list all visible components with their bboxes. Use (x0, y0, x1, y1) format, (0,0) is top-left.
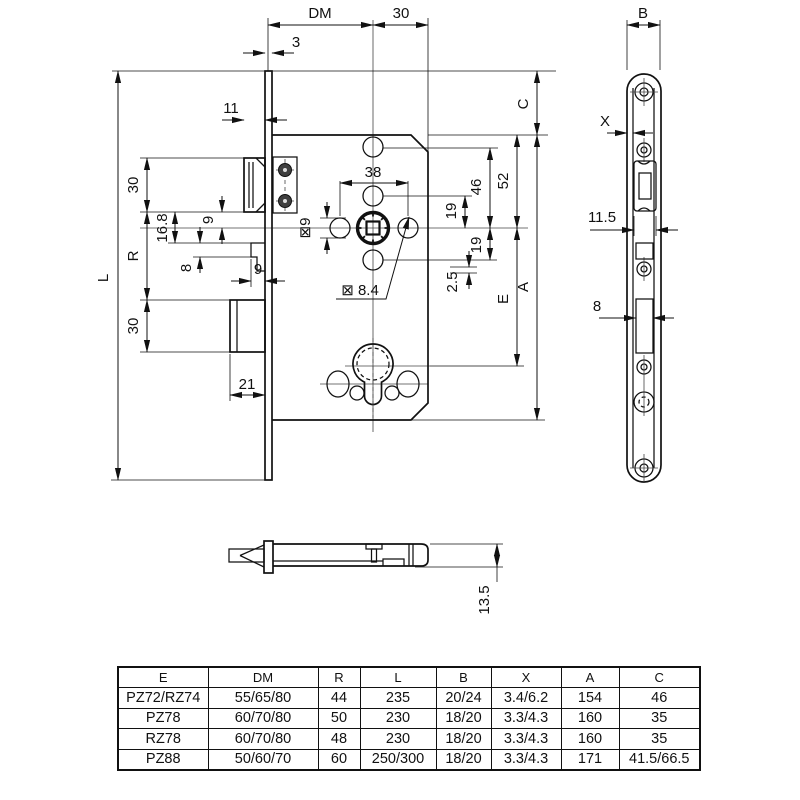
cell: 235 (360, 688, 436, 709)
dim-label-square-9: ⊠9 (297, 218, 314, 239)
dim-label-21: 21 (239, 376, 256, 393)
dim-label-16-8: 16.8 (154, 213, 171, 242)
table-row: PZ78 60/70/80 50 230 18/20 3.3/4.3 160 3… (118, 708, 700, 729)
dim-label-e: E (495, 294, 512, 304)
fixing-holes (330, 137, 418, 270)
cell: 55/65/80 (208, 688, 318, 709)
mortise-lock-technical-drawing: DM 30 3 11 30 9 16.8 8 9 R L 30 21 38 ⊠9… (0, 0, 800, 800)
deadbolt (230, 300, 265, 352)
extension-lines (111, 18, 556, 480)
faceplate-top-view (264, 541, 273, 573)
dim-label-2-5: 2.5 (444, 272, 461, 293)
cell: 3.4/6.2 (491, 688, 561, 709)
dim-label-38: 38 (365, 164, 382, 181)
dim-label-30-deadbolt: 30 (125, 318, 142, 335)
cell: 3.3/4.3 (491, 729, 561, 750)
cell: 160 (561, 708, 619, 729)
dim-label-30-top: 30 (393, 5, 410, 22)
col-header-r: R (318, 667, 360, 688)
dim-label-11: 11 (223, 100, 239, 117)
cell: 35 (619, 708, 700, 729)
dim-label-c: C (515, 98, 532, 109)
dim-label-8: 8 (178, 264, 195, 272)
col-header-x: X (491, 667, 561, 688)
dim-label-8-side: 8 (593, 298, 601, 315)
cell: RZ78 (118, 729, 208, 750)
dim-label-l: L (95, 274, 112, 282)
latch-bolt (244, 158, 265, 212)
cell: 35 (619, 729, 700, 750)
cell: PZ72/RZ74 (118, 688, 208, 709)
col-header-b: B (436, 667, 491, 688)
cell: 60/70/80 (208, 708, 318, 729)
dim-label-b: B (638, 5, 648, 22)
cell: 20/24 (436, 688, 491, 709)
dim-label-9-horiz: 9 (254, 261, 262, 278)
cell: 154 (561, 688, 619, 709)
cell: 60 (318, 749, 360, 770)
cell: 50 (318, 708, 360, 729)
cell: 46 (619, 688, 700, 709)
cell: 44 (318, 688, 360, 709)
dim-label-19-upper: 19 (443, 203, 460, 220)
cell: 230 (360, 708, 436, 729)
col-header-a: A (561, 667, 619, 688)
col-header-dm: DM (208, 667, 318, 688)
dim-label-13-5: 13.5 (476, 585, 493, 614)
dim-label-30-latch: 30 (125, 177, 142, 194)
dim-label-dm: DM (308, 5, 331, 22)
faceplate-edge (265, 71, 272, 480)
col-header-c: C (619, 667, 700, 688)
cell: 230 (360, 729, 436, 750)
dim-label-19-lower: 19 (468, 237, 485, 254)
cell: 60/70/80 (208, 729, 318, 750)
dim-label-46: 46 (468, 179, 485, 196)
table-row: PZ72/RZ74 55/65/80 44 235 20/24 3.4/6.2 … (118, 688, 700, 709)
cell: 171 (561, 749, 619, 770)
cell: 18/20 (436, 729, 491, 750)
spec-table-header-row: E DM R L B X A C (118, 667, 700, 688)
table-row: PZ88 50/60/70 60 250/300 18/20 3.3/4.3 1… (118, 749, 700, 770)
cell: 18/20 (436, 749, 491, 770)
col-header-l: L (360, 667, 436, 688)
bottom-view: 13.5 (229, 541, 503, 615)
cell: PZ78 (118, 708, 208, 729)
cell: 160 (561, 729, 619, 750)
spec-table: E DM R L B X A C PZ72/RZ74 55/65/80 44 2… (117, 666, 701, 771)
dim-label-52: 52 (495, 173, 512, 190)
cell: 48 (318, 729, 360, 750)
cell: PZ88 (118, 749, 208, 770)
dim-label-9-vert: 9 (200, 216, 217, 224)
dim-label-3: 3 (292, 34, 300, 51)
dim-label-square-8-4: ⊠ 8.4 (341, 282, 379, 299)
col-header-e: E (118, 667, 208, 688)
latch-top-view (229, 549, 264, 562)
table-row: RZ78 60/70/80 48 230 18/20 3.3/4.3 160 3… (118, 729, 700, 750)
cell: 50/60/70 (208, 749, 318, 770)
faceplate-view: B X 11.5 8 (588, 5, 678, 482)
dim-label-11-5: 11.5 (588, 209, 616, 226)
lock-case-outline (272, 135, 428, 420)
dim-label-a: A (515, 282, 532, 292)
cell: 250/300 (360, 749, 436, 770)
cell: 18/20 (436, 708, 491, 729)
faceplate-cutouts (634, 161, 656, 353)
cell: 3.3/4.3 (491, 708, 561, 729)
main-view: DM 30 3 11 30 9 16.8 8 9 R L 30 21 38 ⊠9… (95, 5, 556, 480)
cell: 41.5/66.5 (619, 749, 700, 770)
dim-label-x: X (600, 113, 610, 130)
drawing-canvas: DM 30 3 11 30 9 16.8 8 9 R L 30 21 38 ⊠9… (0, 0, 800, 660)
cell: 3.3/4.3 (491, 749, 561, 770)
latch-bracket (273, 157, 297, 213)
dim-label-r: R (125, 250, 142, 261)
case-top-view (273, 544, 428, 566)
